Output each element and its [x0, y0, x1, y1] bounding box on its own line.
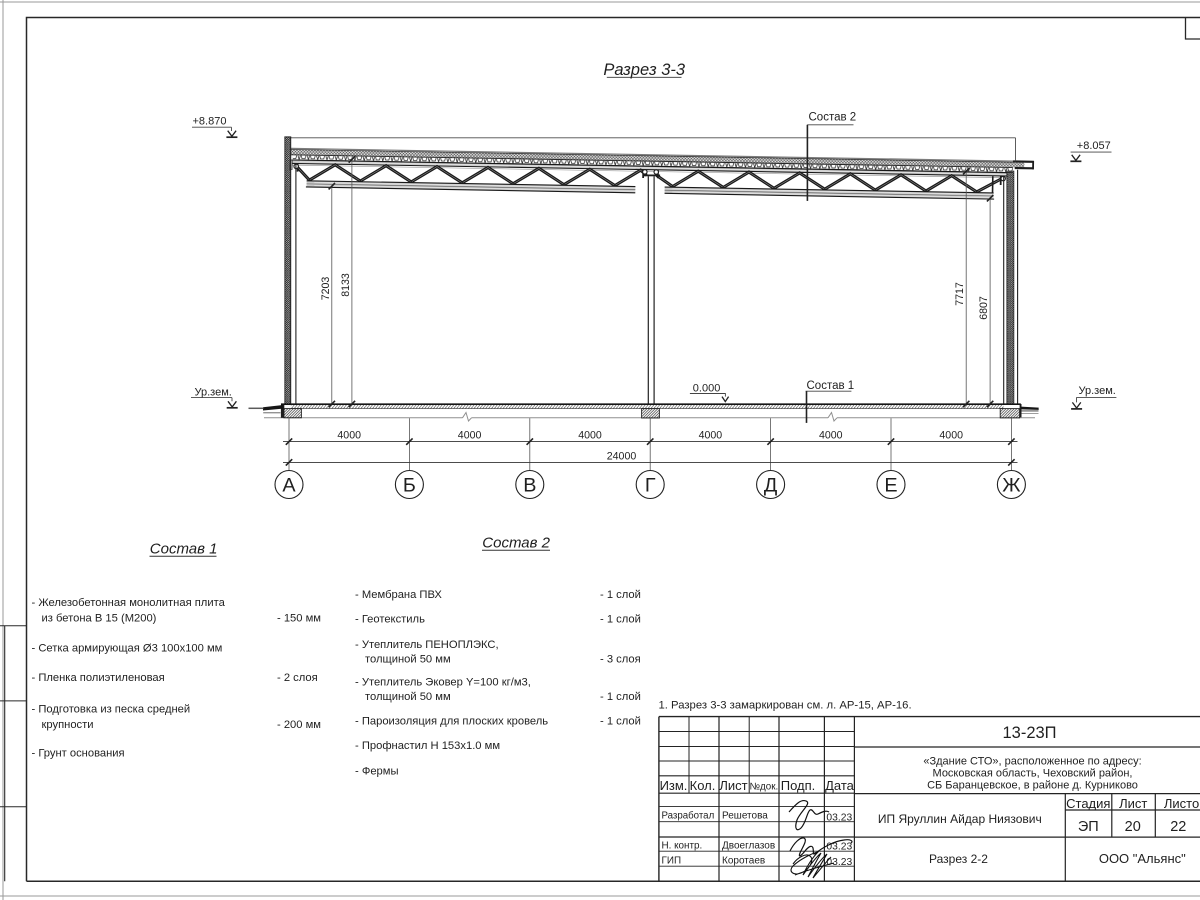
svg-text:- 150 мм: - 150 мм [277, 612, 321, 624]
svg-text:- 1 слой: - 1 слой [600, 715, 641, 727]
svg-text:СБ Баранцевское, в районе д. К: СБ Баранцевское, в районе д. Курниково [927, 780, 1138, 792]
svg-text:- Железобетонная монолитная п: - Железобетонная монолитная плита [32, 597, 226, 609]
svg-text:Дата: Дата [825, 778, 855, 793]
svg-text:Двоеглазов: Двоеглазов [722, 840, 775, 851]
svg-text:толщиной 50 мм: толщиной 50 мм [365, 653, 451, 665]
svg-text:Кол.: Кол. [690, 778, 716, 793]
svg-text:20: 20 [1125, 819, 1141, 835]
svg-text:+8.057: +8.057 [1077, 140, 1111, 152]
svg-text:В: В [523, 475, 536, 497]
svg-text:Разрез 2-2: Разрез 2-2 [929, 852, 988, 866]
svg-text:ИП Яруллин Айдар Ниязович: ИП Яруллин Айдар Ниязович [878, 812, 1042, 826]
svg-text:7203: 7203 [320, 277, 332, 301]
svg-text:13-23П: 13-23П [1002, 724, 1056, 742]
svg-text:- 2 слоя: - 2 слоя [277, 672, 318, 684]
svg-text:крупности: крупности [42, 719, 94, 731]
svg-text:ГИП: ГИП [662, 856, 682, 867]
svg-text:Лист: Лист [1119, 796, 1147, 811]
svg-text:- 1 слой: - 1 слой [600, 613, 641, 625]
svg-text:- 1 слой: - 1 слой [600, 691, 641, 703]
svg-text:Лист: Лист [719, 778, 747, 793]
svg-text:Изм.: Изм. [660, 778, 688, 793]
svg-text:03.23: 03.23 [826, 842, 852, 853]
svg-text:- Сетка армирующая Ø3 100х100: - Сетка армирующая Ø3 100х100 мм [32, 642, 223, 654]
svg-text:Листов: Листов [1164, 796, 1200, 811]
svg-text:- Мембрана ПВХ: - Мембрана ПВХ [355, 589, 442, 601]
svg-text:- Профнастил Н 153х1.0 мм: - Профнастил Н 153х1.0 мм [355, 740, 500, 752]
svg-text:Ур.зем.: Ур.зем. [1079, 385, 1116, 397]
svg-text:«Здание СТО», расположенное по: «Здание СТО», расположенное по адресу: [923, 755, 1141, 767]
svg-text:- Геотекстиль: - Геотекстиль [355, 613, 425, 625]
svg-text:- 1 слой: - 1 слой [600, 589, 641, 601]
svg-text:4000: 4000 [939, 430, 963, 442]
svg-text:Коротаев: Коротаев [722, 856, 765, 867]
svg-text:Разработал: Разработал [662, 811, 715, 822]
svg-text:Стадия: Стадия [1066, 796, 1110, 811]
svg-text:Г: Г [645, 475, 656, 497]
svg-text:Состав 2: Состав 2 [809, 112, 857, 124]
svg-text:Состав 2: Состав 2 [482, 534, 550, 551]
svg-text:Состав 1: Состав 1 [150, 540, 218, 557]
svg-text:- Утеплитель Эковер Y=100 кг/м: - Утеплитель Эковер Y=100 кг/м3, [355, 677, 531, 689]
svg-text:4000: 4000 [819, 430, 843, 442]
svg-text:Разрез 3-3: Разрез 3-3 [603, 61, 686, 79]
svg-text:22: 22 [1170, 819, 1186, 835]
svg-text:- Утеплитель ПЕНОПЛЭКС,: - Утеплитель ПЕНОПЛЭКС, [355, 639, 499, 651]
svg-text:4000: 4000 [458, 430, 482, 442]
svg-text:24000: 24000 [607, 451, 637, 463]
svg-text:03.23: 03.23 [826, 813, 852, 824]
svg-text:- Фермы: - Фермы [355, 766, 399, 778]
svg-text:8133: 8133 [340, 273, 352, 297]
svg-text:ЭП: ЭП [1078, 819, 1099, 835]
svg-text:Московская область, Чеховский: Московская область, Чеховский район, [933, 767, 1133, 779]
svg-text:- Подготовка из песка средней: - Подготовка из песка средней [32, 704, 191, 716]
svg-text:03.23: 03.23 [826, 857, 852, 868]
svg-text:1. Разрез 3-3 замаркирован см.: 1. Разрез 3-3 замаркирован см. л. АР-15,… [659, 700, 912, 712]
svg-text:0.000: 0.000 [693, 382, 721, 394]
svg-text:- Пленка полиэтиленовая: - Пленка полиэтиленовая [32, 672, 165, 684]
svg-text:Д: Д [764, 475, 778, 497]
svg-text:ООО "Альянс": ООО "Альянс" [1099, 851, 1186, 866]
svg-text:- 200 мм: - 200 мм [277, 719, 321, 731]
svg-text:Подп.: Подп. [781, 778, 816, 793]
svg-text:Н. контр.: Н. контр. [662, 840, 703, 851]
svg-text:Б: Б [403, 475, 416, 497]
svg-text:Е: Е [884, 475, 897, 497]
svg-text:- 3 слоя: - 3 слоя [600, 653, 641, 665]
svg-text:Состав 1: Состав 1 [807, 380, 855, 392]
svg-text:7717: 7717 [954, 282, 966, 306]
svg-text:+8.870: +8.870 [193, 116, 227, 128]
svg-text:Ж: Ж [1002, 475, 1020, 497]
svg-text:№док.: №док. [750, 781, 779, 792]
svg-text:- Грунт основания: - Грунт основания [32, 748, 125, 760]
svg-text:4000: 4000 [337, 430, 361, 442]
svg-text:А: А [282, 475, 296, 497]
svg-text:4000: 4000 [578, 430, 602, 442]
svg-text:из бетона В 15 (М200): из бетона В 15 (М200) [42, 612, 157, 624]
svg-text:Решетова: Решетова [722, 811, 768, 822]
svg-text:- Пароизоляция для плоских кро: - Пароизоляция для плоских кровель [355, 715, 548, 727]
svg-text:6807: 6807 [978, 296, 990, 320]
svg-text:4000: 4000 [699, 430, 723, 442]
svg-text:толщиной 50 мм: толщиной 50 мм [365, 691, 451, 703]
svg-text:Ур.зем.: Ур.зем. [195, 387, 232, 399]
